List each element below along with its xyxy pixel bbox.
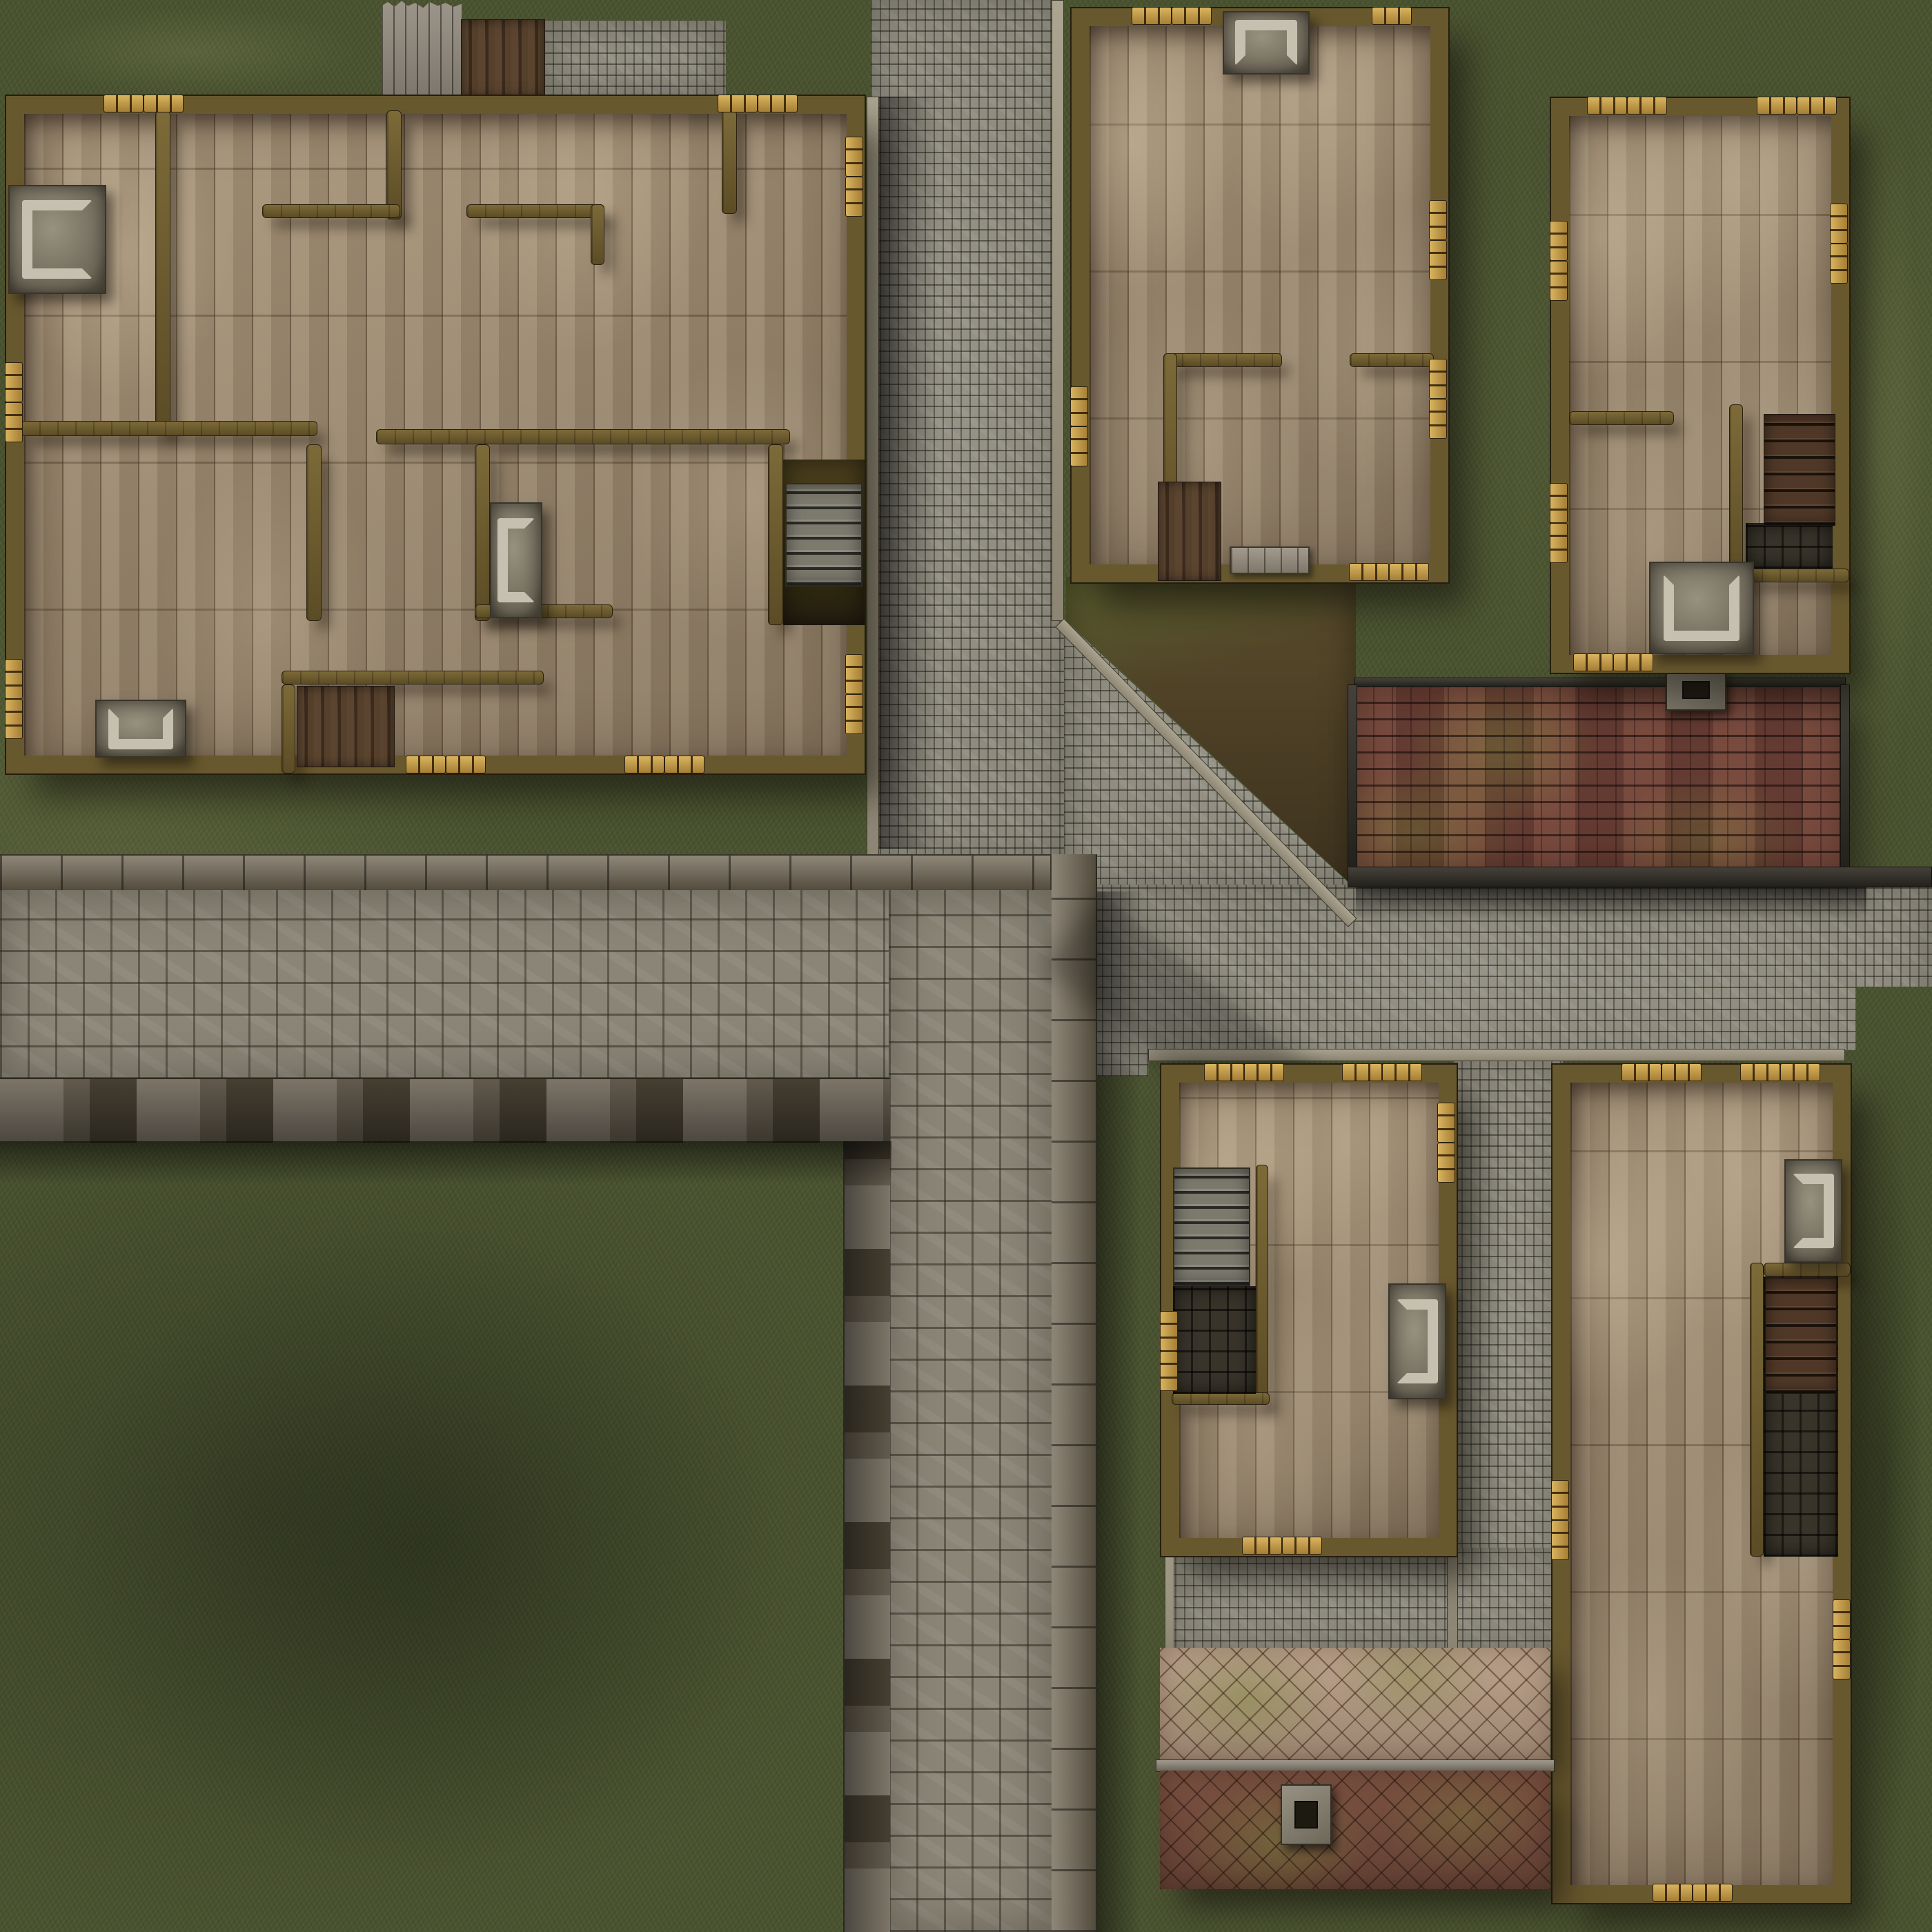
wall-gh-5 bbox=[262, 204, 400, 218]
window-30 bbox=[1797, 97, 1837, 115]
hearth-fireplace-south bbox=[95, 700, 186, 758]
stairs-stone-great-house bbox=[785, 483, 862, 586]
wall-gh-2 bbox=[21, 421, 317, 436]
leanto-roof-lower bbox=[1160, 1771, 1550, 1889]
window-0 bbox=[103, 95, 144, 112]
wall-eh-1 bbox=[1569, 411, 1674, 425]
roof-red-edge-top bbox=[1354, 678, 1846, 687]
wall-eh-3 bbox=[1743, 569, 1849, 582]
curb-north-left bbox=[867, 97, 879, 856]
window-2 bbox=[718, 95, 758, 112]
window-56 bbox=[1551, 1520, 1569, 1560]
window-51 bbox=[1740, 1063, 1780, 1081]
hearth-southeast-house bbox=[1784, 1159, 1842, 1263]
wall-walk-vertical bbox=[889, 890, 1052, 1932]
window-16 bbox=[1132, 7, 1172, 25]
hearth-north-house-blocks bbox=[1235, 20, 1297, 65]
road-patio-north bbox=[544, 21, 726, 98]
wall-gh-4 bbox=[386, 110, 402, 219]
window-38 bbox=[1830, 244, 1848, 284]
window-17 bbox=[1172, 7, 1212, 25]
hearth-stove-center bbox=[490, 502, 542, 618]
window-14 bbox=[845, 654, 863, 694]
hearth-stove-center-blocks bbox=[497, 518, 534, 602]
wall-rim-inner-left bbox=[843, 1141, 890, 1932]
grass-shade-inner-courtyard bbox=[0, 1166, 849, 1932]
woodstore-alcove bbox=[297, 686, 395, 767]
shadow-wall-east bbox=[1097, 891, 1141, 1932]
shadow-roof-on-road bbox=[1356, 887, 1866, 920]
leanto-roof-upper bbox=[1160, 1648, 1550, 1762]
window-45 bbox=[1160, 1311, 1178, 1351]
window-37 bbox=[1830, 204, 1848, 244]
hearth-fireplace-south-blocks bbox=[108, 708, 174, 749]
window-32 bbox=[1613, 653, 1653, 671]
window-10 bbox=[5, 659, 23, 699]
wall-gh-12 bbox=[282, 671, 544, 684]
window-48 bbox=[1437, 1143, 1455, 1183]
wall-gh-13 bbox=[282, 684, 295, 773]
wall-gh-14 bbox=[768, 444, 783, 625]
curb-north-right bbox=[1052, 0, 1064, 621]
wall-seh-1 bbox=[1750, 1263, 1764, 1557]
building-north-house bbox=[1072, 8, 1448, 582]
window-29 bbox=[1757, 97, 1797, 115]
window-42 bbox=[1382, 1063, 1422, 1081]
window-4 bbox=[406, 756, 446, 773]
window-25 bbox=[1429, 359, 1447, 399]
wall-rim-right bbox=[1050, 854, 1097, 1932]
chimney-leanto bbox=[1281, 1784, 1332, 1845]
hearth-south-house-blocks bbox=[1397, 1299, 1437, 1383]
window-22 bbox=[1070, 426, 1088, 466]
wall-gh-9 bbox=[306, 444, 322, 621]
window-7 bbox=[664, 756, 704, 773]
wall-rim-top bbox=[0, 854, 1097, 891]
wall-gh-1 bbox=[155, 110, 170, 433]
window-57 bbox=[1833, 1599, 1851, 1639]
window-58 bbox=[1833, 1639, 1851, 1679]
wall-gh-8 bbox=[722, 110, 737, 214]
shadow-road-west-edge bbox=[879, 97, 938, 849]
roof-red-edge-left bbox=[1348, 684, 1357, 869]
window-41 bbox=[1342, 1063, 1382, 1081]
window-40 bbox=[1244, 1063, 1284, 1081]
window-5 bbox=[446, 756, 486, 773]
hearth-east-house-blocks bbox=[1664, 575, 1739, 641]
window-49 bbox=[1621, 1063, 1662, 1081]
wall-gh-10 bbox=[475, 444, 490, 621]
railing-sh-horizontal bbox=[1172, 1392, 1270, 1405]
wall-nh-2 bbox=[1350, 353, 1434, 367]
window-55 bbox=[1551, 1480, 1569, 1520]
window-50 bbox=[1662, 1063, 1702, 1081]
grass-light-northwest bbox=[0, 0, 386, 103]
hearth-south-house bbox=[1388, 1283, 1446, 1399]
stairs-wood-southeast bbox=[1765, 1278, 1837, 1394]
cellar-south-house bbox=[1173, 1286, 1256, 1394]
window-27 bbox=[1587, 97, 1627, 115]
window-13 bbox=[845, 177, 863, 217]
railing-sh-vertical bbox=[1256, 1165, 1268, 1405]
window-31 bbox=[1573, 653, 1613, 671]
window-26 bbox=[1429, 399, 1447, 439]
chimney-leanto-smoke-hole-icon bbox=[1294, 1801, 1318, 1828]
curb-courtyard-left bbox=[1165, 1548, 1174, 1653]
roof-red-edge-right bbox=[1840, 684, 1850, 869]
window-47 bbox=[1437, 1103, 1455, 1143]
window-20 bbox=[1389, 563, 1429, 581]
cellar-east-house bbox=[1746, 523, 1833, 569]
window-35 bbox=[1550, 483, 1568, 523]
wall-gh-6 bbox=[466, 204, 604, 218]
wall-gh-7 bbox=[591, 204, 604, 265]
window-1 bbox=[144, 95, 184, 112]
hearth-north-house bbox=[1223, 11, 1310, 75]
window-43 bbox=[1242, 1537, 1282, 1555]
deck-plank-north bbox=[382, 0, 462, 98]
window-9 bbox=[5, 402, 23, 442]
hearth-chimney-west-blocks bbox=[22, 200, 92, 279]
bench-north-house bbox=[1230, 546, 1310, 574]
hearth-chimney-west bbox=[8, 185, 106, 294]
wall-seh-2 bbox=[1764, 1263, 1851, 1276]
hearth-east-house bbox=[1649, 562, 1754, 654]
window-46 bbox=[1160, 1351, 1178, 1391]
window-44 bbox=[1282, 1537, 1322, 1555]
shadow-wall-south bbox=[0, 1141, 891, 1184]
window-8 bbox=[5, 362, 23, 402]
wall-gh-3 bbox=[376, 429, 790, 444]
window-3 bbox=[758, 95, 798, 112]
window-21 bbox=[1070, 386, 1088, 426]
village-battlemap bbox=[0, 0, 1932, 1932]
window-24 bbox=[1429, 240, 1447, 280]
window-23 bbox=[1429, 200, 1447, 240]
window-19 bbox=[1349, 563, 1389, 581]
wall-rim-inner-bottom bbox=[0, 1078, 890, 1143]
wall-eh-2 bbox=[1729, 404, 1743, 584]
chimney-red-roof-smoke-hole-icon bbox=[1682, 681, 1710, 700]
window-11 bbox=[5, 699, 23, 739]
window-52 bbox=[1780, 1063, 1820, 1081]
window-39 bbox=[1204, 1063, 1244, 1081]
window-53 bbox=[1653, 1884, 1693, 1902]
hearth-southeast-house-blocks bbox=[1793, 1174, 1833, 1248]
window-6 bbox=[624, 756, 664, 773]
window-54 bbox=[1693, 1884, 1733, 1902]
logpile-north-house bbox=[1158, 482, 1221, 581]
window-18 bbox=[1372, 7, 1412, 25]
window-33 bbox=[1550, 221, 1568, 261]
roof-red-tiled bbox=[1354, 684, 1846, 869]
window-15 bbox=[845, 694, 863, 734]
log-walk-north bbox=[461, 19, 545, 98]
window-12 bbox=[845, 137, 863, 177]
roof-red-edge-bottom bbox=[1348, 867, 1932, 887]
road-courtyard bbox=[1166, 1548, 1563, 1653]
stairs-stone-south-house bbox=[1173, 1167, 1250, 1286]
window-28 bbox=[1627, 97, 1667, 115]
stairs-wood-east-house bbox=[1764, 414, 1835, 526]
wall-nh-1 bbox=[1163, 353, 1282, 367]
window-34 bbox=[1550, 261, 1568, 301]
chimney-red-roof bbox=[1666, 669, 1726, 711]
window-36 bbox=[1550, 523, 1568, 563]
